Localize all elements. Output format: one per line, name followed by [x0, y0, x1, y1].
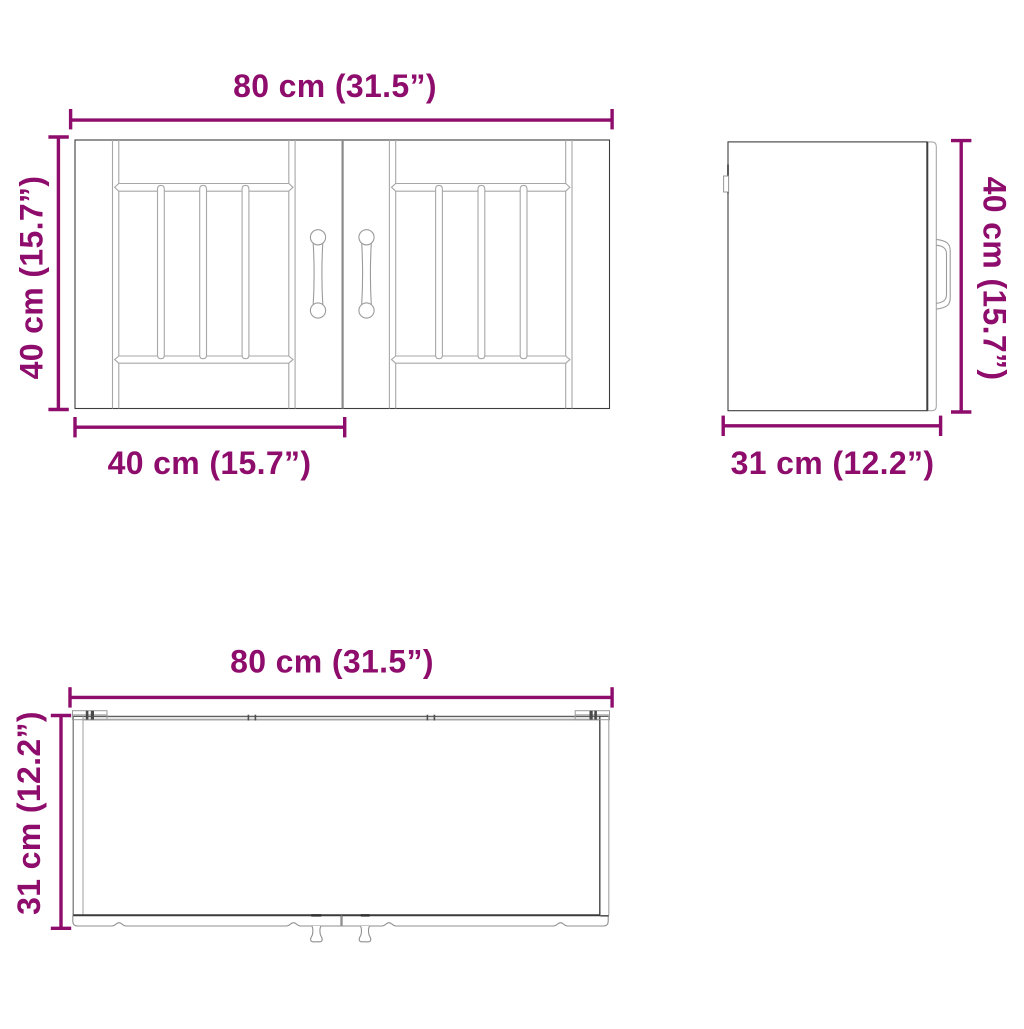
svg-text:80 cm (31.5”): 80 cm (31.5”) [233, 68, 437, 104]
svg-text:40 cm (15.7”): 40 cm (15.7”) [977, 177, 1013, 381]
svg-text:31 cm (12.2”): 31 cm (12.2”) [11, 711, 47, 915]
svg-text:80 cm (31.5”): 80 cm (31.5”) [230, 644, 434, 680]
svg-text:40 cm (15.7”): 40 cm (15.7”) [108, 445, 312, 481]
svg-text:40 cm (15.7”): 40 cm (15.7”) [14, 176, 50, 380]
svg-text:31 cm (12.2”): 31 cm (12.2”) [731, 445, 935, 481]
